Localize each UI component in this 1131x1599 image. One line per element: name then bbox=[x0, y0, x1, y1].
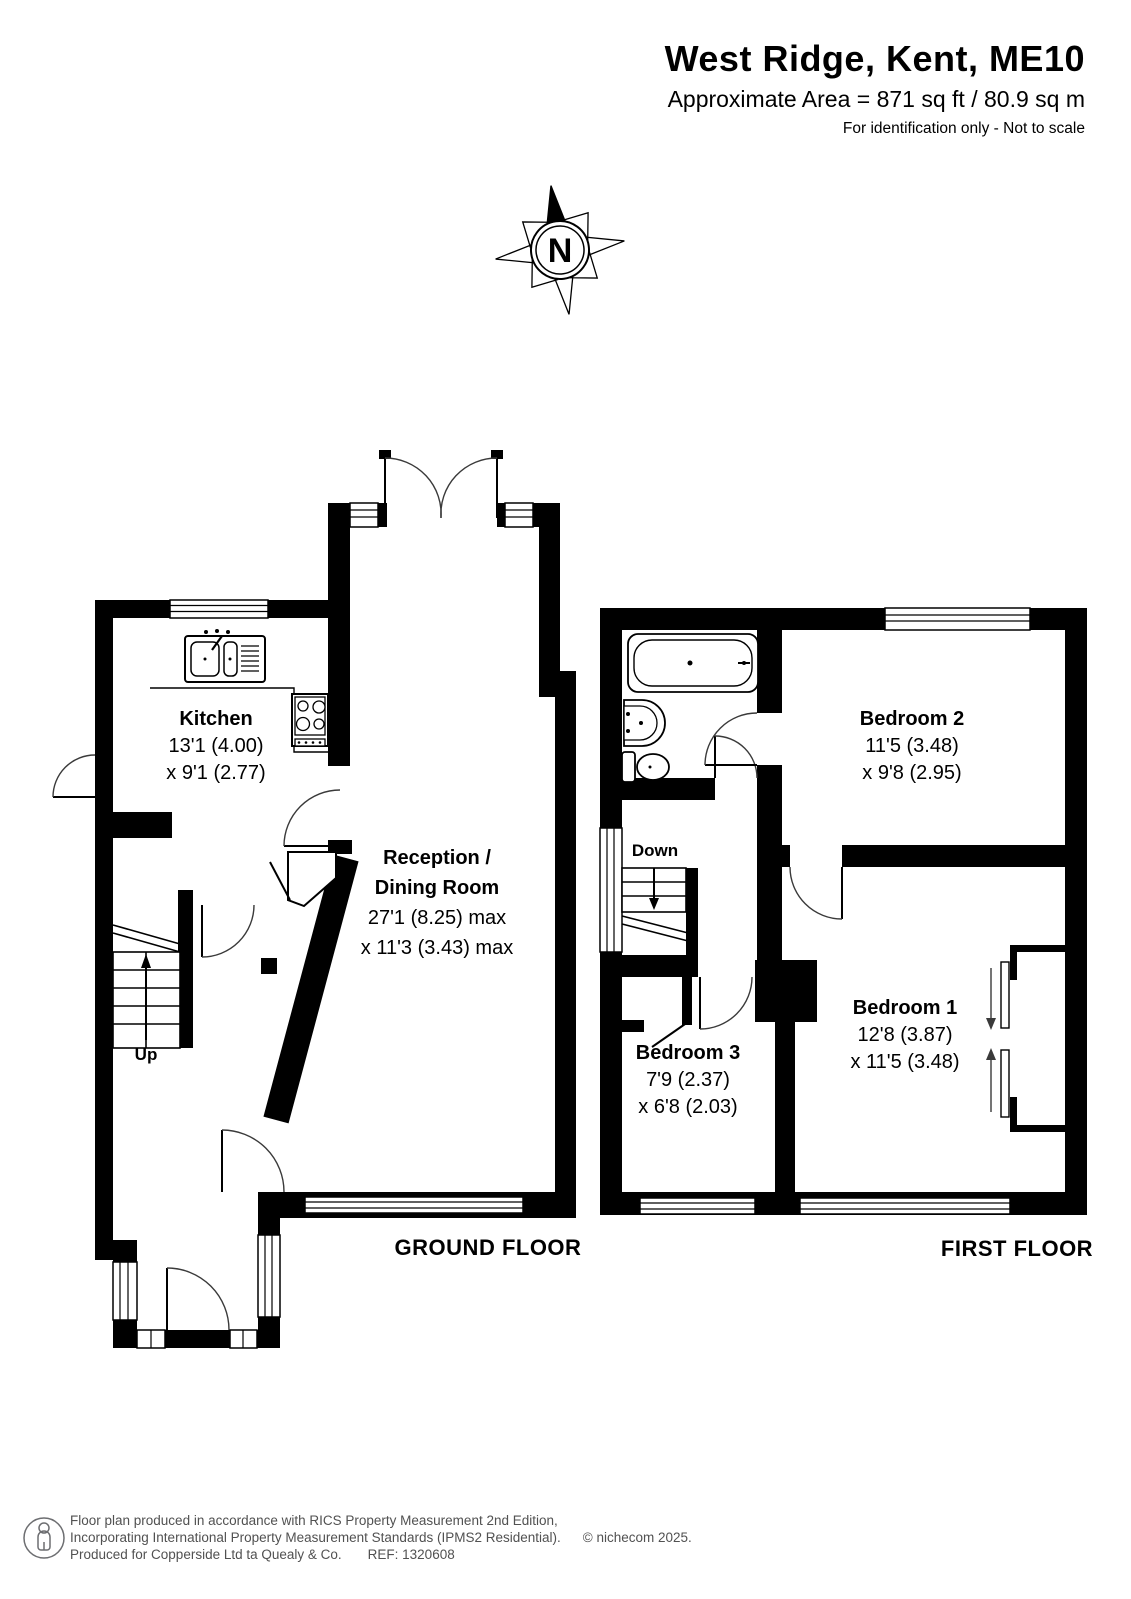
bedroom1-door-gap bbox=[790, 845, 842, 867]
toilet-icon bbox=[622, 752, 669, 782]
kitchen-hob-icon bbox=[292, 694, 328, 746]
bedroom1-name: Bedroom 1 bbox=[850, 995, 959, 1022]
bedroom3-label: Bedroom 3 7'9 (2.37) x 6'8 (2.03) bbox=[636, 1040, 740, 1121]
kitchen-name: Kitchen bbox=[166, 706, 265, 733]
footer-line3: Produced for Copperside Ltd ta Quealy & … bbox=[70, 1547, 342, 1562]
bathroom-door-swing bbox=[715, 736, 757, 778]
bedroom2-label: Bedroom 2 11'5 (3.48) x 9'8 (2.95) bbox=[860, 706, 964, 787]
kitchen-label: Kitchen 13'1 (4.00) x 9'1 (2.77) bbox=[166, 706, 265, 787]
reception-label: Reception / Dining Room 27'1 (8.25) max … bbox=[361, 843, 513, 963]
bedroom3-name: Bedroom 3 bbox=[636, 1040, 740, 1067]
hall-door-swing bbox=[202, 905, 254, 957]
footer-copyright: © nichecom 2025. bbox=[583, 1530, 692, 1545]
kitchen-dim1: 13'1 (4.00) bbox=[166, 733, 265, 760]
bedroom2-dim1: 11'5 (3.48) bbox=[860, 733, 964, 760]
kitchen-dim2: x 9'1 (2.77) bbox=[166, 760, 265, 787]
reception-name-line2: Dining Room bbox=[361, 873, 513, 903]
footer-reference: REF: 1320608 bbox=[368, 1547, 455, 1562]
stairs-up-label: Up bbox=[135, 1045, 158, 1065]
reception-door-swing bbox=[222, 1130, 284, 1192]
bedroom2-dim2: x 9'8 (2.95) bbox=[860, 760, 964, 787]
stairs-down-label: Down bbox=[632, 841, 678, 861]
slide-up-arrow-icon bbox=[986, 1048, 996, 1060]
stairs-down bbox=[622, 868, 692, 942]
reception-dim2: x 11'3 (3.43) max bbox=[361, 933, 513, 963]
slide-down-arrow-icon bbox=[986, 1018, 996, 1030]
bath-icon bbox=[628, 634, 758, 692]
floorplan-drawing: N bbox=[0, 0, 1131, 1599]
basin-icon bbox=[624, 700, 665, 746]
kitchen-door-swing bbox=[284, 790, 340, 846]
bedroom1-dim2: x 11'5 (3.48) bbox=[850, 1049, 959, 1076]
person-icon bbox=[24, 1518, 64, 1558]
bedroom3-dim2: x 6'8 (2.03) bbox=[636, 1094, 740, 1121]
first-floor-plan bbox=[600, 608, 1087, 1215]
bedroom1-dim1: 12'8 (3.87) bbox=[850, 1022, 959, 1049]
compass-north-label: N bbox=[548, 232, 573, 270]
wardrobe-sliding-doors bbox=[986, 945, 1065, 1132]
bedroom3-door-swing bbox=[700, 977, 752, 1029]
reception-name-line1: Reception / bbox=[361, 843, 513, 873]
footer-line1: Floor plan produced in accordance with R… bbox=[70, 1512, 692, 1529]
reception-dim1: 27'1 (8.25) max bbox=[361, 903, 513, 933]
side-door-swing bbox=[53, 755, 95, 797]
patio-double-doors bbox=[385, 458, 497, 518]
bedroom1-door-swing bbox=[790, 867, 842, 919]
bedroom2-name: Bedroom 2 bbox=[860, 706, 964, 733]
floorplan-page: West Ridge, Kent, ME10 Approximate Area … bbox=[0, 0, 1131, 1599]
bedroom3-dim1: 7'9 (2.37) bbox=[636, 1067, 740, 1094]
ground-floor-title: GROUND FLOOR bbox=[395, 1235, 582, 1261]
bedroom1-label: Bedroom 1 12'8 (3.87) x 11'5 (3.48) bbox=[850, 995, 959, 1076]
front-door-swing bbox=[167, 1268, 229, 1330]
compass-rose-icon: N bbox=[487, 177, 634, 324]
first-floor-title: FIRST FLOOR bbox=[941, 1236, 1093, 1262]
footer: Floor plan produced in accordance with R… bbox=[70, 1512, 692, 1563]
kitchen-sink-icon bbox=[185, 629, 265, 682]
footer-line2: Incorporating International Property Mea… bbox=[70, 1530, 561, 1545]
stairs-up bbox=[113, 925, 180, 1048]
